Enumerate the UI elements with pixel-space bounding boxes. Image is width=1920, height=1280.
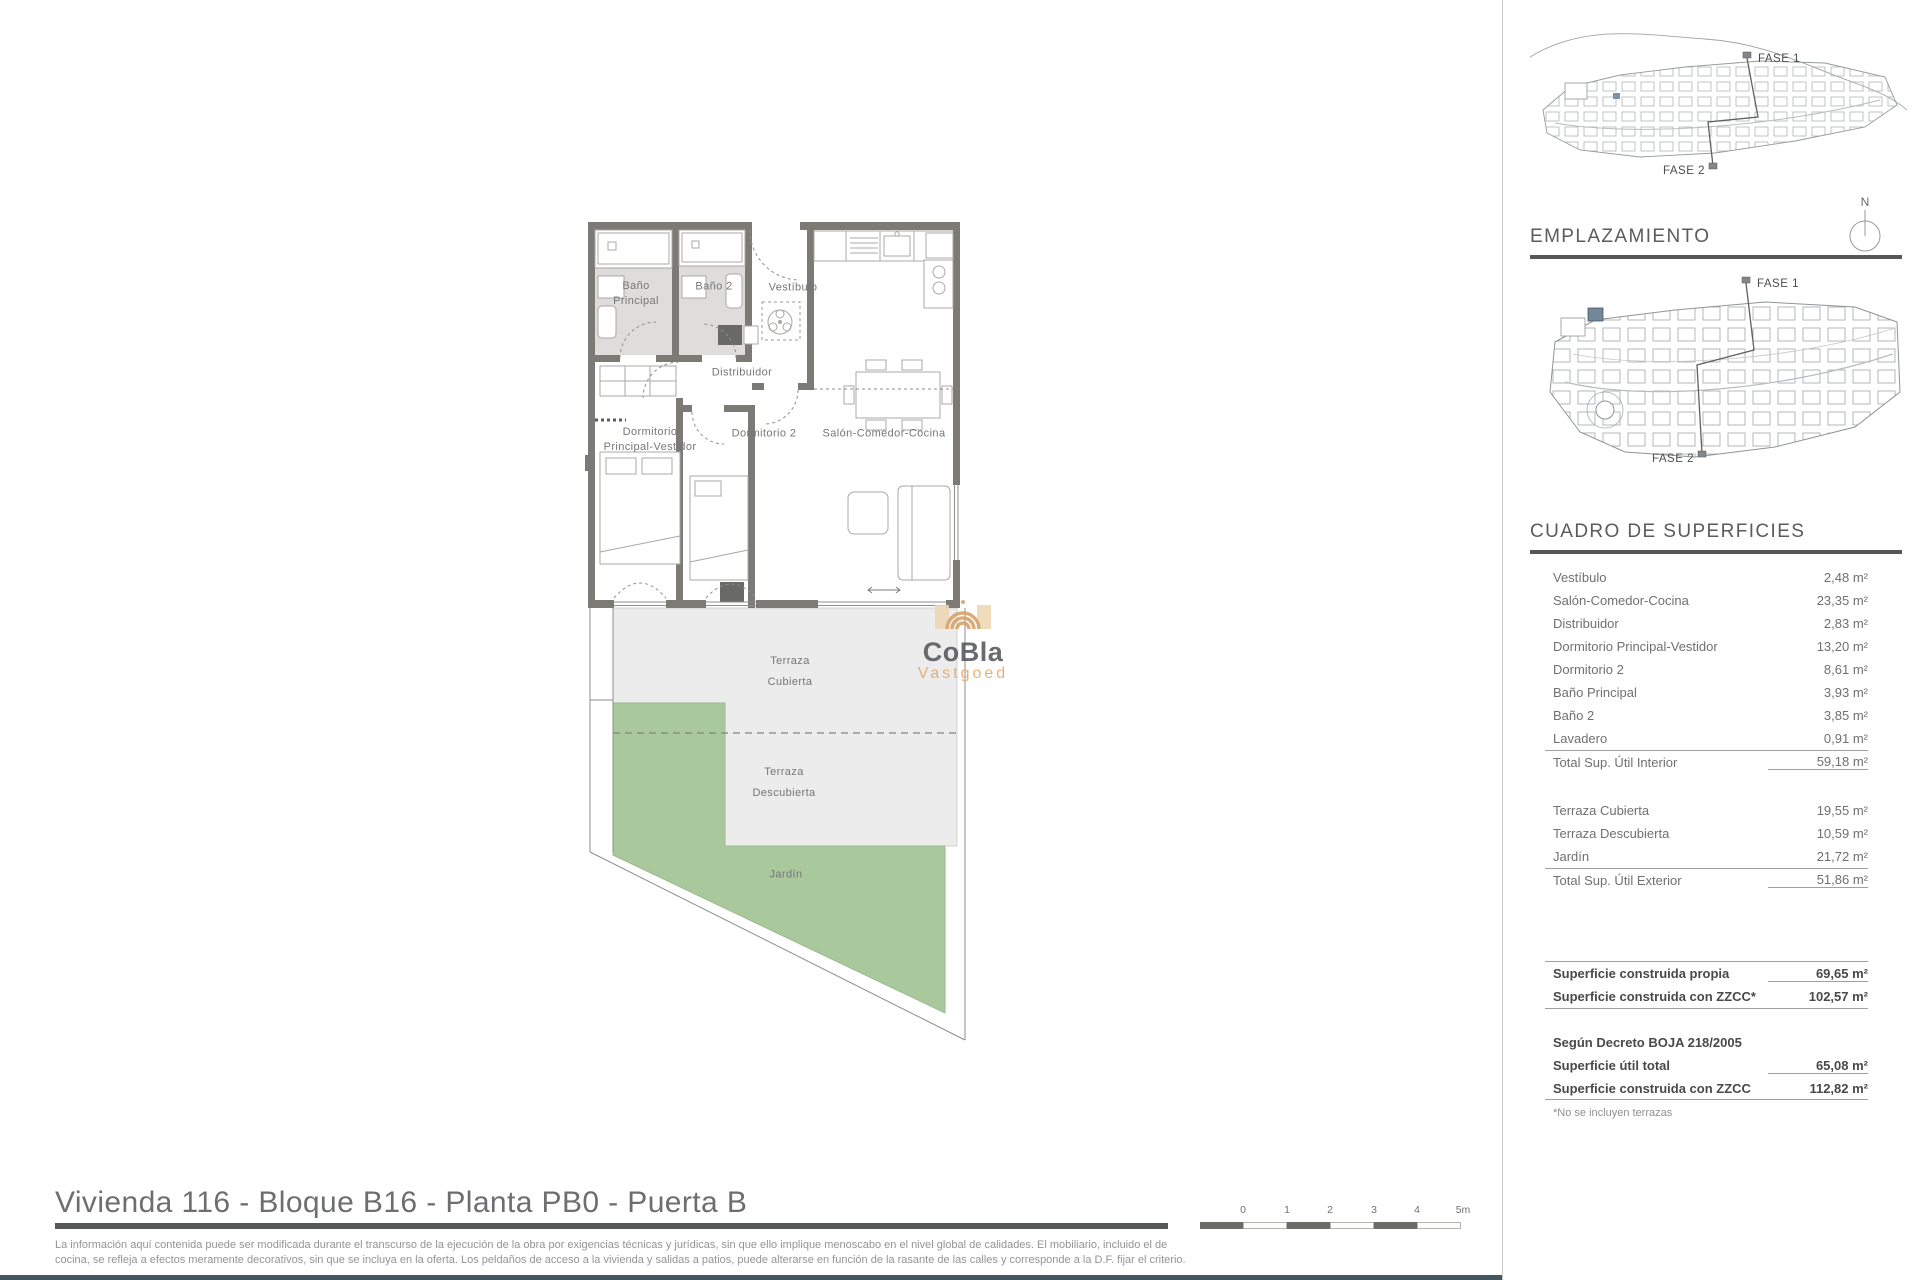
scale-segment (1200, 1222, 1243, 1229)
fase1-label-siteplan: FASE 1 (1757, 278, 1799, 290)
fase2-label-siteplan: FASE 2 (1652, 453, 1694, 465)
room-label-dormitorio-2: Dormitorio 2 (732, 427, 797, 442)
scale-segment (1417, 1222, 1461, 1229)
scale-segment (1287, 1222, 1330, 1229)
scale-bar: 0 1 2 3 4 5m (1195, 1204, 1475, 1234)
table-row-built: Superficie construida propia69,65 m² (1545, 961, 1868, 985)
cuadro-heading: CUADRO DE SUPERFICIES (1530, 521, 1902, 554)
room-label-salon: Salón-Comedor-Cocina (823, 427, 946, 442)
fase1-label-aerial: FASE 1 (1758, 53, 1800, 65)
surfaces-table: Vestíbulo2,48 m² Salón-Comedor-Cocina23,… (1545, 566, 1868, 1119)
plan-sheet-page: { "maps": { "section_title": "EMPLAZAMIE… (0, 0, 1920, 1280)
room-label-bano-principal: BañoPrincipal (613, 279, 659, 309)
scale-tick: 4 (1414, 1204, 1420, 1216)
watermark-subtitle: Vastgoed (901, 665, 1025, 683)
table-footnote: *No se incluyen terrazas (1545, 1107, 1868, 1119)
scale-tick: 0 (1240, 1204, 1246, 1216)
scale-tick: 1 (1284, 1204, 1290, 1216)
table-row: Lavadero0,91 m² (1545, 727, 1868, 750)
room-label-dormitorio-principal: DormitorioPrincipal-Vestidor (604, 425, 697, 455)
scale-segment (1374, 1222, 1417, 1229)
compass-n-label: N (1861, 195, 1870, 209)
area-label-terraza-cubierta: TerrazaCubierta (768, 651, 813, 693)
area-label-jardin: Jardín (770, 868, 803, 883)
decree-heading-row: Según Decreto BOJA 218/2005 (1545, 1031, 1868, 1054)
aerial-site-map: FASE 1 FASE 2 (1525, 5, 1910, 195)
table-row: Distribuidor2,83 m² (1545, 612, 1868, 635)
cobla-logo-icon (934, 598, 992, 634)
watermark-logo: CoBla Vastgoed (901, 598, 1025, 683)
table-row: Dormitorio 28,61 m² (1545, 658, 1868, 681)
scale-tick: 5m (1456, 1204, 1471, 1216)
table-row: Salón-Comedor-Cocina23,35 m² (1545, 589, 1868, 612)
sheet-title: Vivienda 116 - Bloque B16 - Planta PB0 -… (55, 1186, 747, 1220)
table-row: Jardín21,72 m² (1545, 845, 1868, 868)
table-row-decree: Superficie útil total65,08 m² (1545, 1054, 1868, 1077)
slider-arrow (868, 587, 900, 593)
table-row: Terraza Cubierta19,55 m² (1545, 799, 1868, 822)
scale-segment (1243, 1222, 1287, 1229)
footer-rule (0, 1275, 1502, 1280)
room-label-vestibulo: Vestíbulo (769, 281, 818, 296)
table-row-built: Superficie construida con ZZCC*102,57 m² (1545, 985, 1868, 1009)
area-label-terraza-descubierta: TerrazaDescubierta (752, 762, 815, 804)
emplazamiento-heading: EMPLAZAMIENTO (1530, 226, 1902, 259)
table-row: Baño Principal3,93 m² (1545, 681, 1868, 704)
table-row: Baño 23,85 m² (1545, 704, 1868, 727)
fase2-label-aerial: FASE 2 (1663, 165, 1705, 177)
table-row: Dormitorio Principal-Vestidor13,20 m² (1545, 635, 1868, 658)
service-box (744, 326, 758, 344)
scale-tick: 3 (1371, 1204, 1377, 1216)
table-row: Terraza Descubierta10,59 m² (1545, 822, 1868, 845)
table-row: Vestíbulo2,48 m² (1545, 566, 1868, 589)
disclaimer-line-2: cocina, se refleja a efectos meramente d… (55, 1253, 1186, 1268)
room-label-distribuidor: Distribuidor (712, 366, 772, 381)
site-plan-map: FASE 1 FASE 2 (1525, 262, 1910, 484)
table-row-decree: Superficie construida con ZZCC112,82 m² (1545, 1077, 1868, 1100)
watermark-name: CoBla (901, 639, 1025, 665)
sidebar-divider (1502, 0, 1503, 1280)
table-row-total-exterior: Total Sup. Útil Exterior51,86 m² (1545, 868, 1868, 891)
room-label-bano-2: Baño 2 (695, 280, 732, 295)
disclaimer-line-1: La información aquí contenida puede ser … (55, 1238, 1167, 1253)
title-underline (55, 1223, 1168, 1229)
scale-segment (1330, 1222, 1374, 1229)
table-row-total-interior: Total Sup. Útil Interior59,18 m² (1545, 750, 1868, 773)
scale-tick: 2 (1327, 1204, 1333, 1216)
